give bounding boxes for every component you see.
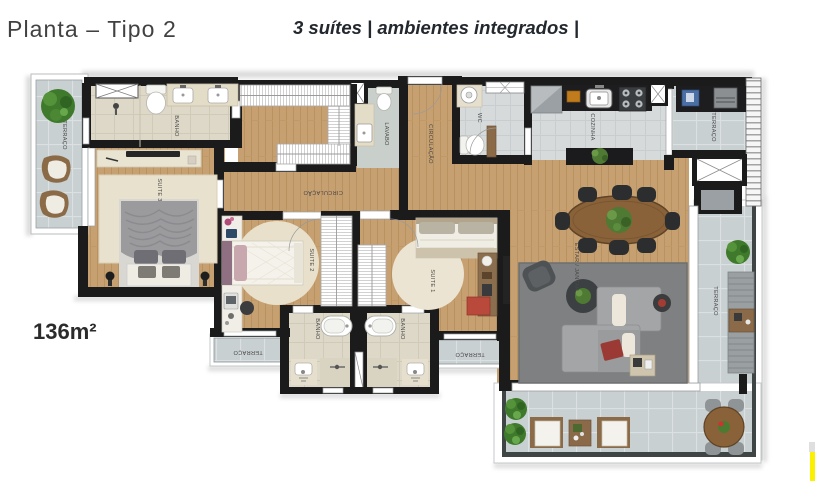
svg-text:ESTAR / JANTAR: ESTAR / JANTAR	[573, 243, 579, 291]
svg-text:TERRAÇO: TERRAÇO	[61, 120, 67, 150]
svg-text:SUITE 1: SUITE 1	[429, 269, 435, 292]
svg-text:COZINHA: COZINHA	[589, 113, 595, 140]
svg-text:BANHO: BANHO	[314, 318, 320, 340]
svg-text:CIRCULAÇÃO: CIRCULAÇÃO	[303, 189, 343, 196]
svg-text:SUITE 2: SUITE 2	[308, 248, 314, 271]
svg-text:LAVABO: LAVABO	[383, 122, 389, 146]
svg-text:TERRAÇO: TERRAÇO	[712, 286, 718, 316]
svg-text:WC: WC	[476, 113, 482, 123]
svg-text:TERRAÇO: TERRAÇO	[233, 349, 263, 355]
svg-text:BANHO: BANHO	[173, 115, 179, 137]
svg-text:TERRAÇO: TERRAÇO	[710, 112, 716, 142]
svg-text:BANHO: BANHO	[399, 318, 405, 340]
svg-text:TERRAÇO: TERRAÇO	[455, 351, 485, 357]
svg-text:SUITE 3: SUITE 3	[156, 178, 162, 201]
svg-text:CIRCULAÇÃO: CIRCULAÇÃO	[427, 124, 434, 164]
